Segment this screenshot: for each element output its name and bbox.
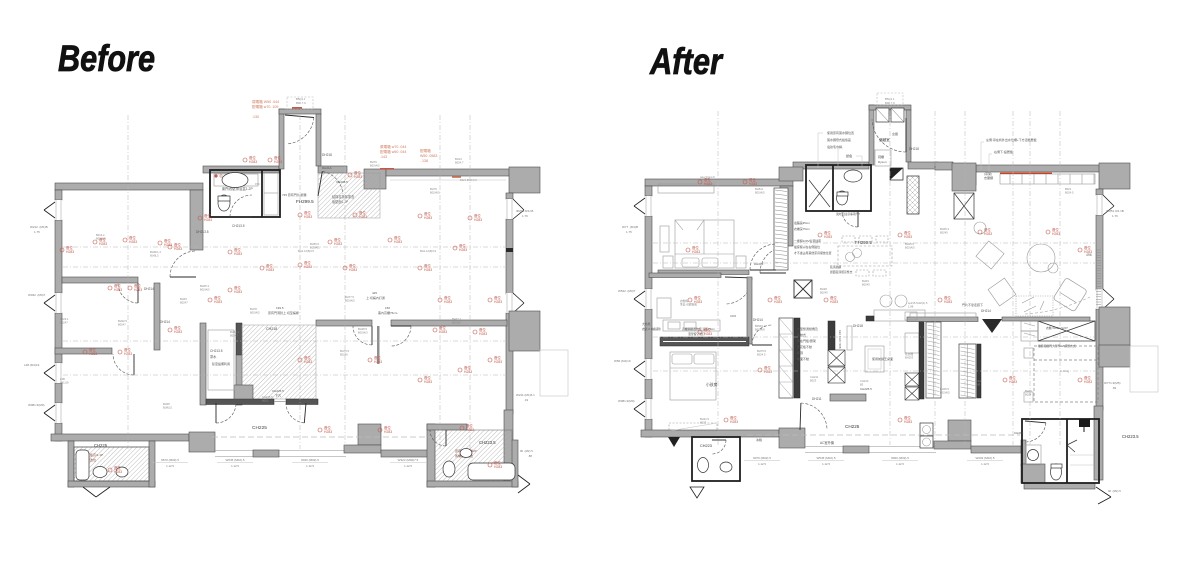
svg-text:W50 .0583: W50 .0583 bbox=[420, 154, 437, 158]
svg-text:DH214: DH214 bbox=[981, 309, 991, 313]
svg-text:淺望留空後打: 淺望留空後打 bbox=[688, 332, 705, 336]
svg-text:ΦM11.9/4J.B: ΦM11.9/4J.B bbox=[516, 209, 533, 213]
svg-text:B024.5: B024.5 bbox=[757, 352, 766, 356]
svg-text:DH213.5: DH213.5 bbox=[196, 230, 209, 234]
svg-text:配電箱 w70 .109: 配電箱 w70 .109 bbox=[252, 104, 278, 109]
svg-text:萬水鋼登式給俵區: 萬水鋼登式給俵區 bbox=[827, 137, 851, 142]
svg-text:9070 (M02).5: 9070 (M02).5 bbox=[753, 456, 771, 460]
svg-text:L38.(M1)19: L38.(M1)19 bbox=[24, 363, 40, 367]
svg-text:結構柱拆除需查: 結構柱拆除需查 bbox=[332, 194, 355, 199]
svg-text:DH214: DH214 bbox=[754, 262, 764, 266]
svg-text:BH05: BH05 bbox=[1025, 389, 1032, 393]
svg-text:BH78: BH78 bbox=[250, 307, 257, 311]
svg-text:B(M)L5: B(M)L5 bbox=[163, 405, 172, 409]
svg-text:BH05.5: BH05.5 bbox=[905, 242, 914, 246]
svg-text:CH225: CH225 bbox=[845, 424, 860, 429]
svg-text:W045 (M02).5: W045 (M02).5 bbox=[225, 458, 244, 462]
svg-text:DH231: DH231 bbox=[222, 399, 232, 403]
svg-text:H283: H283 bbox=[266, 268, 274, 272]
svg-text:CH223.5: CH223.5 bbox=[479, 440, 496, 445]
svg-text:H283: H283 bbox=[824, 235, 832, 239]
svg-text:. 138: . 138 bbox=[420, 159, 428, 163]
svg-text:適时加注意事項厃7: 適时加注意事項厃7 bbox=[836, 212, 860, 216]
svg-text:裝潢牆顧: 裝潢牆顧 bbox=[830, 265, 841, 269]
svg-text:坪頂: 坪頂 bbox=[797, 350, 803, 355]
svg-text:B0245: B0245 bbox=[862, 282, 870, 286]
svg-text:衣櫃深75cm: 衣櫃深75cm bbox=[794, 226, 810, 231]
svg-text:弱電箱 W50 .044: 弱電箱 W50 .044 bbox=[252, 99, 279, 104]
svg-text:準表-可經掛籃: 準表-可經掛籃 bbox=[680, 302, 697, 306]
svg-text:1.75: 1.75 bbox=[626, 230, 632, 234]
svg-text:B02(4)5: B02(4)5 bbox=[200, 287, 210, 291]
svg-text:才不讓占用其他家具擺放位置: 才不讓占用其他家具擺放位置 bbox=[794, 250, 832, 255]
svg-text:W322 (M02)7.5: W322 (M02)7.5 bbox=[398, 458, 419, 462]
svg-text:154: 154 bbox=[255, 182, 260, 186]
svg-text:BH56.5: BH56.5 bbox=[310, 242, 319, 246]
svg-text:1.88: 1.88 bbox=[908, 304, 914, 308]
svg-text:BH77.5: BH77.5 bbox=[345, 295, 354, 299]
svg-text:B013.2: B013.2 bbox=[96, 233, 105, 237]
svg-text:W56.(M1)19: W56.(M1)19 bbox=[614, 359, 631, 363]
svg-text:H283: H283 bbox=[704, 182, 712, 186]
svg-text:H283: H283 bbox=[359, 215, 367, 219]
svg-text:H283: H283 bbox=[764, 370, 772, 374]
svg-text:H283: H283 bbox=[1009, 380, 1017, 384]
svg-text:廁所改壁排浴盆1.2P: 廁所改壁排浴盆1.2P bbox=[222, 186, 253, 191]
svg-text:H283: H283 bbox=[944, 300, 952, 304]
svg-text:H283: H283 bbox=[479, 332, 487, 336]
svg-text:H283: H283 bbox=[66, 250, 74, 254]
svg-text:後壁面1.2P: 後壁面1.2P bbox=[332, 199, 348, 204]
svg-text:90 .(M2).5: 90 .(M2).5 bbox=[520, 449, 533, 453]
svg-text:右側下:設層板: 右側下:設層板 bbox=[994, 149, 1013, 154]
svg-text:B023: B023 bbox=[700, 420, 707, 424]
svg-text:Before: Before bbox=[58, 38, 155, 79]
svg-text:1.12.5: 1.12.5 bbox=[166, 464, 174, 468]
svg-text:CH225.5: CH225.5 bbox=[272, 389, 284, 393]
svg-text:CH213: CH213 bbox=[860, 379, 869, 383]
svg-text:H283: H283 bbox=[89, 352, 97, 356]
svg-text:CH225: CH225 bbox=[94, 443, 108, 448]
svg-text:香在門板/實架: 香在門板/實架 bbox=[797, 338, 816, 343]
svg-text:地面不動: 地面不動 bbox=[797, 356, 809, 361]
svg-text:FH299.5: FH299.5 bbox=[855, 240, 872, 245]
svg-text:H283: H283 bbox=[114, 470, 122, 474]
svg-text:DH218: DH218 bbox=[853, 324, 863, 328]
svg-text:H283: H283 bbox=[692, 250, 700, 254]
svg-text:1.12.5: 1.12.5 bbox=[306, 464, 314, 468]
svg-text:BH511: BH511 bbox=[755, 187, 764, 191]
svg-text:H283: H283 bbox=[494, 300, 502, 304]
svg-text:CH223.5: CH223.5 bbox=[1122, 434, 1139, 439]
svg-text:臥室設備利用: 臥室設備利用 bbox=[212, 361, 230, 366]
svg-text:H283: H283 bbox=[749, 182, 757, 186]
svg-text:BH02.5: BH02.5 bbox=[118, 319, 127, 323]
svg-text:B0247: B0247 bbox=[118, 322, 126, 326]
svg-text:H283: H283 bbox=[124, 352, 132, 356]
svg-text:B024.5: B024.5 bbox=[1065, 190, 1074, 194]
svg-text:Dyson: Dyson bbox=[878, 160, 887, 164]
svg-text:實面裝潢留意整支: 實面裝潢留意整支 bbox=[830, 270, 853, 274]
svg-text:電腦長95cm: 電腦長95cm bbox=[794, 220, 810, 225]
svg-text:1.76: 1.76 bbox=[522, 214, 528, 218]
svg-text:冰箱: 冰箱 bbox=[756, 437, 762, 442]
svg-text:配電箱: 配電箱 bbox=[420, 148, 431, 153]
svg-text:W77 .(M1)B: W77 .(M1)B bbox=[622, 225, 638, 229]
svg-text:sp01: sp01 bbox=[975, 379, 981, 383]
svg-text:冊內高櫃76cm: 冊內高櫃76cm bbox=[378, 310, 398, 315]
svg-text:BH77.1: BH77.1 bbox=[452, 317, 461, 321]
svg-text:H283: H283 bbox=[214, 300, 222, 304]
svg-text:左側:吊在椅外出水位槽+下方活動層板: 左側:吊在椅外出水位槽+下方活動層板 bbox=[986, 137, 1037, 142]
svg-text:2.80: 2.80 bbox=[975, 382, 981, 386]
svg-text:a4+(2)gno.5: a4+(2)gno.5 bbox=[700, 175, 715, 179]
svg-text:H283: H283 bbox=[424, 216, 432, 220]
svg-text:志蘭棚: 志蘭棚 bbox=[984, 175, 993, 180]
svg-text:1.75: 1.75 bbox=[34, 230, 40, 234]
svg-text:BH13: BH13 bbox=[455, 157, 462, 161]
svg-text:B024.7: B024.7 bbox=[455, 160, 464, 164]
svg-text:.69: .69 bbox=[1112, 386, 1117, 390]
svg-text:衣櫃 W052+S207: 衣櫃 W052+S207 bbox=[1046, 326, 1068, 330]
svg-text:BH1.12(8)3.9: BH1.12(8)3.9 bbox=[420, 249, 436, 253]
svg-text:9670 (M02).5: 9670 (M02).5 bbox=[161, 458, 179, 462]
svg-text:H283: H283 bbox=[129, 240, 137, 244]
svg-text:BH79: BH79 bbox=[430, 187, 437, 191]
svg-text:H283: H283 bbox=[99, 242, 107, 246]
svg-text:W212 .(M1)B: W212 .(M1)B bbox=[30, 225, 48, 229]
svg-text:1.12.5: 1.12.5 bbox=[896, 462, 904, 466]
svg-text:CH208.5: CH208.5 bbox=[336, 180, 348, 184]
svg-text:W545 (M02).5: W545 (M02).5 bbox=[816, 456, 835, 460]
svg-text:745 原有門片:斷簧: 745 原有門片:斷簧 bbox=[282, 192, 307, 197]
svg-text:H283: H283 bbox=[304, 265, 312, 269]
svg-text:H283: H283 bbox=[904, 235, 912, 239]
svg-text:150: 150 bbox=[385, 306, 390, 310]
svg-text:DH214: DH214 bbox=[144, 287, 154, 291]
svg-text:B023: B023 bbox=[810, 378, 817, 382]
svg-text:茶水: 茶水 bbox=[210, 354, 217, 359]
svg-text:B0245: B0245 bbox=[940, 230, 948, 234]
svg-text:BHKF1.4: BHKF1.4 bbox=[150, 250, 161, 254]
svg-text:H283: H283 bbox=[444, 300, 452, 304]
svg-text:B02(4)5: B02(4)5 bbox=[370, 163, 380, 167]
svg-text:H283: H283 bbox=[174, 247, 182, 251]
svg-text:BH203: BH203 bbox=[905, 355, 914, 359]
svg-text:BH05.5: BH05.5 bbox=[940, 387, 949, 391]
svg-text:BH05.3: BH05.3 bbox=[200, 284, 209, 288]
svg-text:DH218: DH218 bbox=[322, 153, 332, 157]
svg-text:CH213.5: CH213.5 bbox=[232, 224, 245, 228]
svg-text:B0503.1: B0503.1 bbox=[755, 324, 766, 328]
svg-text:衣表-0.6絨鋪墊: 衣表-0.6絨鋪墊 bbox=[642, 327, 661, 331]
svg-text:B02(4)5: B02(4)5 bbox=[940, 390, 950, 394]
svg-text:插座留㎡在右側點位: 插座留㎡在右側點位 bbox=[794, 244, 820, 249]
svg-text:H283: H283 bbox=[774, 300, 782, 304]
svg-text:H283: H283 bbox=[334, 242, 342, 246]
svg-text:H283: H283 bbox=[439, 330, 447, 334]
svg-text:B02(4)5: B02(4)5 bbox=[250, 310, 260, 314]
svg-text:BH79: BH79 bbox=[370, 160, 377, 164]
svg-text:B02(4)5: B02(4)5 bbox=[310, 245, 320, 249]
svg-text:BH28: BH28 bbox=[820, 287, 827, 291]
svg-text:W032 .(M0)7: W032 .(M0)7 bbox=[28, 293, 46, 297]
svg-text:B3: B3 bbox=[860, 382, 864, 386]
svg-text:DH214: DH214 bbox=[753, 318, 763, 322]
svg-text:B(H)L3: B(H)L3 bbox=[150, 253, 159, 257]
svg-text:B021: B021 bbox=[1065, 187, 1072, 191]
svg-text:90 .(M2).5: 90 .(M2).5 bbox=[1108, 489, 1121, 493]
svg-text:H283: H283 bbox=[704, 332, 712, 336]
svg-text:W771.9(M5): W771.9(M5) bbox=[1104, 381, 1121, 385]
svg-text:H283: H283 bbox=[1052, 232, 1060, 236]
svg-text:玄關: 玄關 bbox=[892, 131, 898, 136]
svg-text:H283: H283 bbox=[730, 420, 738, 424]
svg-text:CH213: CH213 bbox=[1014, 431, 1024, 435]
svg-text:H283: H283 bbox=[904, 420, 912, 424]
svg-text:B0247: B0247 bbox=[230, 333, 238, 337]
svg-text:H283: H283 bbox=[1084, 380, 1092, 384]
svg-text:B0245: B0245 bbox=[340, 352, 348, 356]
svg-text:H283: H283 bbox=[174, 330, 182, 334]
svg-text:鞋櫃: 鞋櫃 bbox=[878, 154, 884, 159]
svg-text:H283: H283 bbox=[494, 360, 502, 364]
svg-text:B023.1: B023.1 bbox=[60, 317, 69, 321]
svg-text:L3B: L3B bbox=[60, 377, 65, 381]
svg-text:使用原有萬水鋼位置: 使用原有萬水鋼位置 bbox=[827, 130, 854, 135]
svg-text:425: 425 bbox=[372, 291, 377, 295]
svg-text:CH211: CH211 bbox=[810, 375, 819, 379]
svg-text:BH05: BH05 bbox=[163, 402, 170, 406]
svg-text:原有門洞封上.切至橫樑: 原有門洞封上.切至橫樑 bbox=[268, 310, 299, 315]
svg-text:乾衣機: 乾衣機 bbox=[905, 352, 913, 356]
svg-text:B0247: B0247 bbox=[60, 320, 68, 324]
svg-text:H283: H283 bbox=[984, 232, 992, 236]
svg-text:1.12.5: 1.12.5 bbox=[822, 462, 830, 466]
svg-text:BH75.5: BH75.5 bbox=[340, 349, 349, 353]
svg-text:小孩房: 小孩房 bbox=[706, 382, 718, 387]
svg-text:1.12.5: 1.12.5 bbox=[758, 462, 766, 466]
svg-text:(M1)19: (M1)19 bbox=[60, 380, 69, 384]
svg-text:B0247: B0247 bbox=[180, 300, 188, 304]
svg-text:H283: H283 bbox=[424, 380, 432, 384]
svg-text:H283: H283 bbox=[466, 428, 474, 432]
svg-text:BH05.3: BH05.3 bbox=[940, 227, 949, 231]
svg-text:CH223: CH223 bbox=[700, 444, 712, 448]
svg-text:DH211: DH211 bbox=[812, 397, 822, 401]
svg-text:.143: .143 bbox=[380, 155, 387, 159]
svg-text:DH218: DH218 bbox=[909, 147, 919, 151]
svg-text:B02(4)3: B02(4)3 bbox=[358, 330, 368, 334]
svg-text:sp215.5x02(1).5: sp215.5x02(1).5 bbox=[908, 301, 928, 305]
svg-text:496: 496 bbox=[1086, 253, 1092, 257]
svg-text:1.12.5: 1.12.5 bbox=[231, 464, 239, 468]
svg-text:CD#: CD# bbox=[730, 314, 736, 318]
svg-text:H283: H283 bbox=[474, 218, 482, 222]
svg-text:1.12.5: 1.12.5 bbox=[981, 462, 989, 466]
svg-text:W081.9(M0): W081.9(M0) bbox=[28, 403, 45, 407]
svg-text:BH03: BH03 bbox=[862, 279, 869, 283]
svg-text:BH75.5: BH75.5 bbox=[757, 349, 766, 353]
svg-text:H283: H283 bbox=[304, 215, 312, 219]
svg-text:H283: H283 bbox=[304, 360, 312, 364]
svg-text:B00.7.9: B00.7.9 bbox=[296, 101, 306, 105]
svg-text:B02(4)5: B02(4)5 bbox=[345, 298, 355, 302]
svg-text:衣帽桿: 衣帽桿 bbox=[680, 299, 688, 303]
svg-text:FH299.5: FH299.5 bbox=[296, 199, 314, 204]
svg-text:BH03: BH03 bbox=[180, 297, 187, 301]
svg-text:H283: H283 bbox=[459, 248, 467, 252]
svg-text:H283: H283 bbox=[204, 218, 212, 222]
svg-text:9090 (M02).5: 9090 (M02).5 bbox=[891, 456, 909, 460]
svg-text:B02(4)5: B02(4)5 bbox=[755, 190, 765, 194]
svg-text:CH225.5: CH225.5 bbox=[860, 387, 872, 391]
svg-text:壁龕: 壁龕 bbox=[846, 153, 852, 158]
svg-text:B024: B024 bbox=[1025, 392, 1032, 396]
svg-text:W202 (M02).5: W202 (M02).5 bbox=[975, 456, 994, 460]
svg-text:9040 (M02).5: 9040 (M02).5 bbox=[301, 458, 319, 462]
svg-text:H283: H283 bbox=[134, 288, 142, 292]
svg-text:1.76: 1.76 bbox=[1112, 214, 1118, 218]
svg-text:B02(4)8: B02(4)8 bbox=[755, 327, 765, 331]
svg-text:199.5: 199.5 bbox=[276, 306, 284, 310]
svg-text:一樓留220V電源插座: 一樓留220V電源插座 bbox=[794, 238, 821, 243]
svg-text:儲藏室: 儲藏室 bbox=[879, 137, 890, 142]
svg-text:B00.7.9: B00.7.9 bbox=[885, 101, 895, 105]
svg-text:H283: H283 bbox=[494, 465, 502, 469]
svg-text:1.12.5: 1.12.5 bbox=[404, 464, 412, 468]
svg-text:W542 .(M0)7: W542 .(M0)7 bbox=[618, 289, 636, 293]
svg-text:.19: .19 bbox=[524, 398, 529, 402]
svg-text:AC室外機: AC室外機 bbox=[820, 440, 835, 445]
svg-text:REF RO/C748B: REF RO/C748B bbox=[838, 330, 842, 349]
svg-text:H283: H283 bbox=[324, 430, 332, 434]
svg-text:上:切橫內打通: 上:切橫內打通 bbox=[366, 295, 385, 300]
svg-text:BH21.5: BH21.5 bbox=[700, 417, 709, 421]
svg-text:.88: .88 bbox=[528, 454, 532, 458]
svg-text:B02(4)7: B02(4)7 bbox=[452, 320, 462, 324]
svg-text:CH213.5: CH213.5 bbox=[210, 349, 223, 353]
svg-text:BH51.1: BH51.1 bbox=[230, 330, 239, 334]
svg-text:DH214: DH214 bbox=[160, 320, 170, 324]
svg-text:B0245: B0245 bbox=[820, 290, 828, 294]
svg-text:H283: H283 bbox=[234, 290, 242, 294]
svg-text:H283: H283 bbox=[394, 240, 402, 244]
svg-text:B02(4)5: B02(4)5 bbox=[905, 245, 915, 249]
svg-text:原電箱 w70 .044: 原電箱 w70 .044 bbox=[380, 144, 406, 149]
svg-text:下亢: 下亢 bbox=[275, 393, 281, 398]
svg-text:大型整燙紙機及: 大型整燙紙機及 bbox=[797, 326, 818, 331]
svg-text:大格墊: 大格墊 bbox=[642, 322, 651, 326]
svg-text:CH215.5: CH215.5 bbox=[262, 395, 273, 399]
svg-text:配電箱 w50 .044: 配電箱 w50 .044 bbox=[380, 149, 406, 154]
svg-text:B023: B023 bbox=[262, 398, 269, 402]
svg-text:H283: H283 bbox=[424, 268, 432, 272]
svg-text:ΦM51.9/4.1B: ΦM51.9/4.1B bbox=[1106, 209, 1124, 213]
svg-text:H283: H283 bbox=[464, 370, 472, 374]
svg-text:H283: H283 bbox=[249, 160, 257, 164]
svg-text:活動式: 活動式 bbox=[797, 332, 806, 337]
svg-text:BH28.5: BH28.5 bbox=[358, 327, 367, 331]
svg-text:H283: H283 bbox=[830, 300, 838, 304]
svg-text:H283: H283 bbox=[354, 175, 362, 179]
svg-text:DH21A: DH21A bbox=[322, 166, 332, 170]
svg-text:H283: H283 bbox=[384, 430, 392, 434]
svg-text:W081.9(M0): W081.9(M0) bbox=[618, 399, 635, 403]
svg-text:BH1.12(8)3.5: BH1.12(8)3.5 bbox=[298, 249, 314, 253]
svg-text:W211.(M1)5.1: W211.(M1)5.1 bbox=[516, 393, 535, 397]
svg-text:H283: H283 bbox=[349, 268, 357, 272]
svg-text:CH218: CH218 bbox=[266, 327, 277, 331]
svg-text:B021 B02(4).5: B021 B02(4).5 bbox=[460, 178, 477, 182]
svg-text:天花板不動: 天花板不動 bbox=[797, 344, 812, 349]
svg-text:B02(4)5: B02(4)5 bbox=[430, 190, 440, 194]
svg-text:.130: .130 bbox=[252, 115, 259, 119]
svg-text:CH225: CH225 bbox=[252, 425, 267, 431]
svg-text:H283: H283 bbox=[374, 360, 382, 364]
svg-text:H283: H283 bbox=[234, 252, 242, 256]
svg-text:H283: H283 bbox=[114, 288, 122, 292]
svg-text:After: After bbox=[649, 41, 724, 82]
svg-text:H283: H283 bbox=[274, 160, 282, 164]
